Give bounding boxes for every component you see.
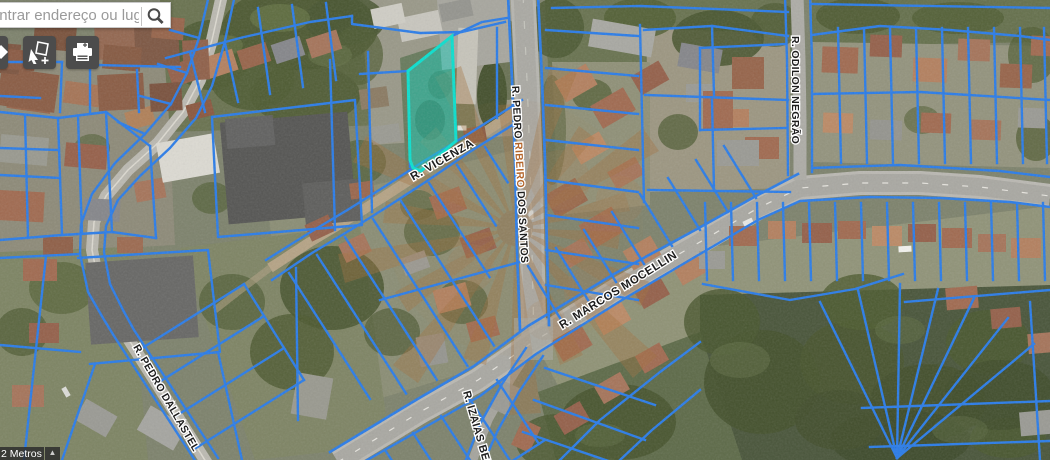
- svg-text:R. ODILON NEGRÃO: R. ODILON NEGRÃO: [789, 36, 802, 144]
